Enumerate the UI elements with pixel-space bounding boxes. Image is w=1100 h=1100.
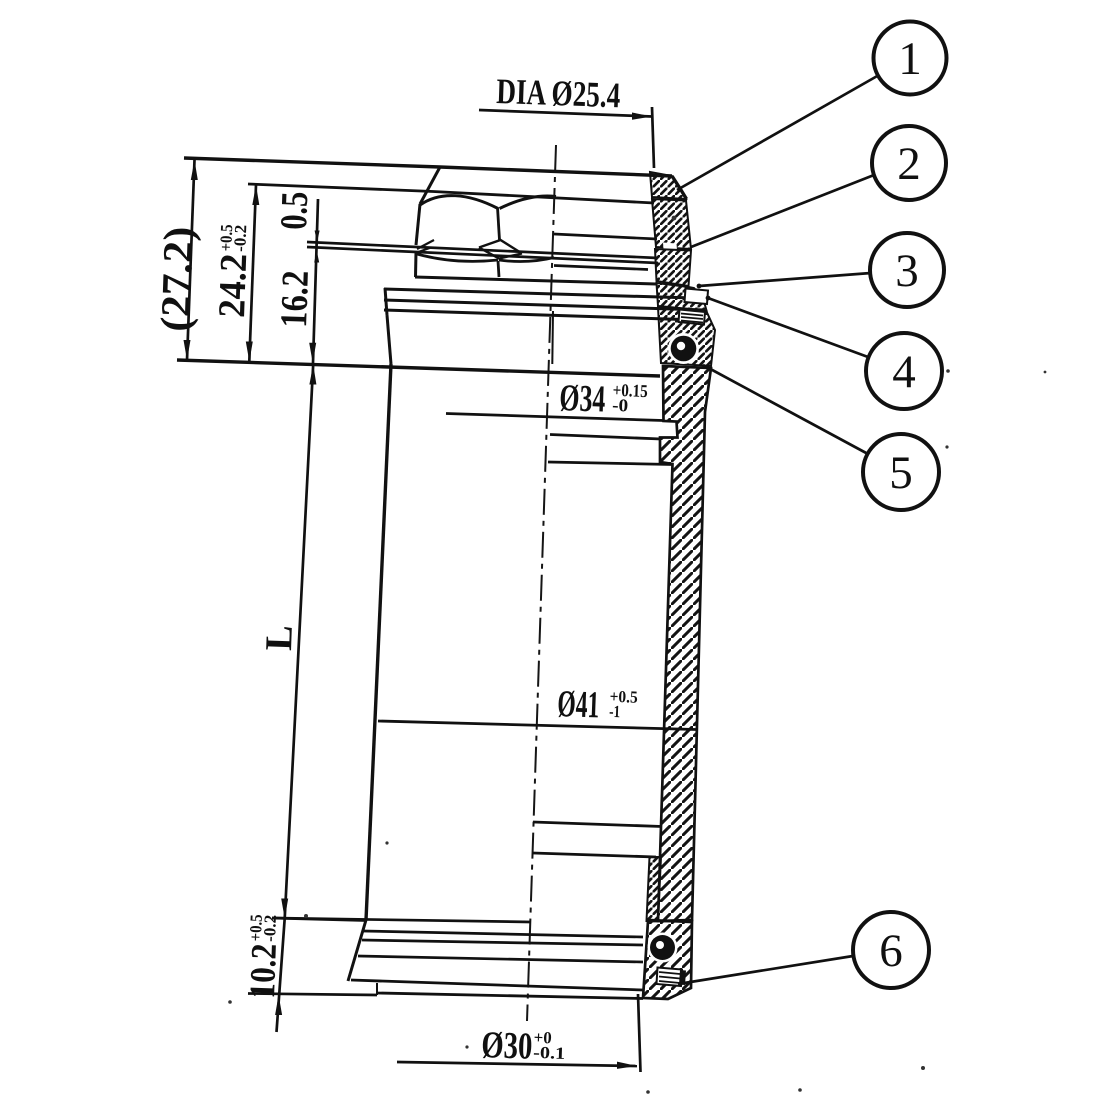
svg-text:6: 6 <box>879 925 903 977</box>
svg-text:5: 5 <box>889 447 913 499</box>
svg-text:10.2: 10.2 <box>242 943 284 999</box>
svg-text:(27.2): (27.2) <box>153 226 203 333</box>
svg-text:2: 2 <box>897 138 921 190</box>
svg-text:-0.2: -0.2 <box>230 224 250 252</box>
svg-text:1: 1 <box>898 33 922 85</box>
svg-text:-0: -0 <box>612 395 629 416</box>
svg-text:-1: -1 <box>609 702 621 721</box>
svg-text:-0.1: -0.1 <box>533 1043 566 1063</box>
svg-text:Ø41: Ø41 <box>557 683 600 726</box>
svg-text:24.2: 24.2 <box>211 253 255 318</box>
svg-text:Ø34: Ø34 <box>559 377 606 421</box>
svg-text:3: 3 <box>895 245 919 297</box>
svg-text:16.2: 16.2 <box>273 270 317 328</box>
svg-text:L: L <box>258 625 301 652</box>
svg-text:DIA Ø25.4: DIA Ø25.4 <box>496 71 621 115</box>
svg-text:4: 4 <box>892 346 916 398</box>
svg-text:Ø30: Ø30 <box>481 1024 533 1068</box>
svg-text:0.5: 0.5 <box>273 191 316 230</box>
